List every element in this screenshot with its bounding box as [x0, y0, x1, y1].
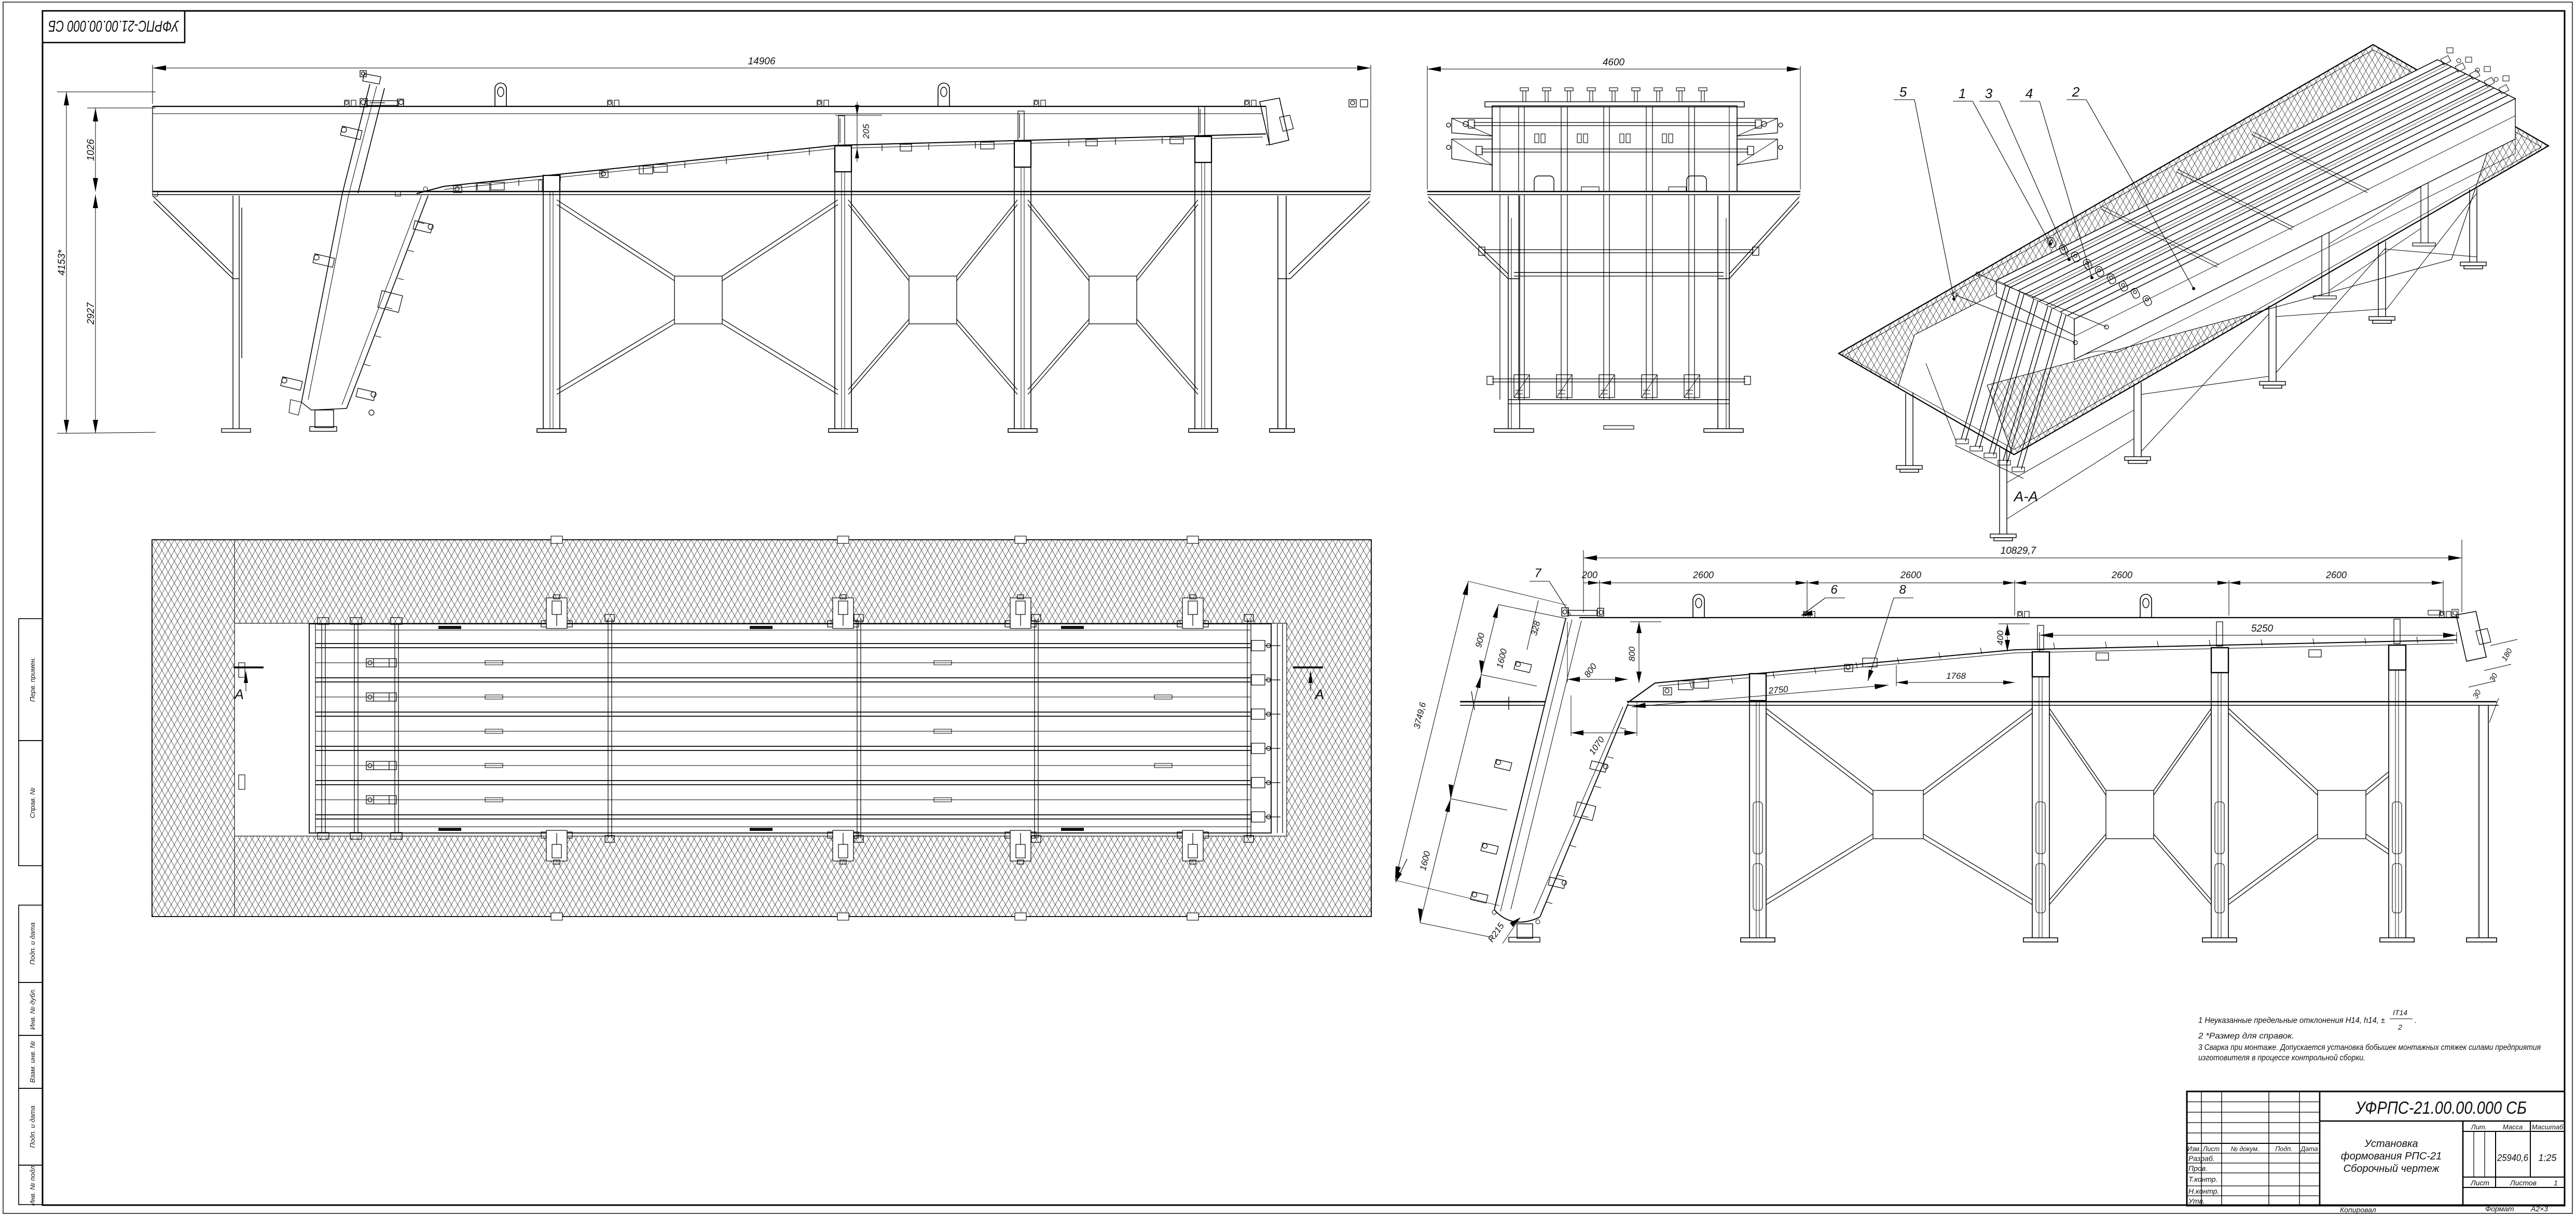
svg-text:Сборочный чертеж: Сборочный чертеж [2344, 1163, 2440, 1174]
svg-text:2: 2 [2398, 1023, 2402, 1031]
svg-text:25940,6: 25940,6 [2497, 1153, 2529, 1163]
svg-text:4153*: 4153* [57, 250, 67, 276]
svg-text:205: 205 [861, 124, 871, 139]
svg-text:Копировал: Копировал [2340, 1206, 2376, 1214]
svg-text:3: 3 [1985, 86, 1993, 101]
svg-text:2600: 2600 [1900, 570, 1921, 580]
svg-text:IT14: IT14 [2393, 1008, 2407, 1017]
svg-text:УФРПС-21.00.00.000 СБ: УФРПС-21.00.00.000 СБ [48, 17, 180, 35]
svg-text:Пров.: Пров. [2188, 1164, 2208, 1172]
svg-text:5: 5 [1899, 84, 1907, 100]
svg-text:7: 7 [1534, 566, 1542, 580]
svg-text:2600: 2600 [2325, 570, 2347, 580]
svg-text:5250: 5250 [2251, 623, 2274, 634]
svg-text:2750: 2750 [1768, 684, 1789, 695]
svg-text:2600: 2600 [1692, 570, 1714, 580]
svg-text:Перв. примен.: Перв. примен. [29, 657, 36, 702]
svg-text:2600: 2600 [2111, 570, 2132, 580]
svg-text:2927: 2927 [86, 302, 97, 325]
svg-text:1026: 1026 [86, 139, 97, 161]
svg-text:Подп. и дата: Подп. и дата [29, 922, 36, 964]
svg-text:Формат: Формат [2485, 1205, 2514, 1213]
svg-text:Инв. № дубл.: Инв. № дубл. [29, 988, 36, 1030]
svg-text:Лит.: Лит. [2471, 1123, 2487, 1131]
svg-text:8: 8 [1899, 583, 1906, 597]
svg-text:1:25: 1:25 [2538, 1153, 2557, 1163]
svg-text:Листов: Листов [2510, 1179, 2537, 1187]
svg-text:Разраб.: Разраб. [2188, 1154, 2215, 1163]
svg-text:Дата: Дата [2300, 1145, 2318, 1153]
svg-text:Масштаб: Масштаб [2532, 1123, 2564, 1131]
svg-text:Изм.: Изм. [2187, 1145, 2201, 1153]
svg-text:2 *Размер для справок.: 2 *Размер для справок. [2198, 1032, 2294, 1041]
svg-text:14906: 14906 [748, 56, 776, 67]
svg-text:1: 1 [1959, 86, 1966, 101]
svg-text:А-А: А-А [2013, 488, 2038, 504]
svg-text:1768: 1768 [1946, 671, 1966, 681]
svg-text:800: 800 [1627, 646, 1637, 661]
svg-text:Масса: Масса [2503, 1123, 2523, 1131]
svg-text:изготовителя в процессе контро: изготовителя в процессе контрольной сбор… [2198, 1054, 2365, 1062]
svg-text:400: 400 [1995, 630, 2005, 645]
svg-text:Лист: Лист [2202, 1145, 2220, 1153]
svg-text:УФРПС-21.00.00.000 СБ: УФРПС-21.00.00.000 СБ [2355, 1098, 2527, 1118]
svg-text:4600: 4600 [1603, 57, 1625, 68]
svg-text:Утв.: Утв. [2188, 1197, 2205, 1205]
svg-text:Инв. № подл.: Инв. № подл. [29, 1164, 36, 1206]
svg-text:№ докум.: № докум. [2230, 1145, 2259, 1153]
svg-text:Справ. №: Справ. № [29, 787, 36, 818]
svg-text:1 Неуказанные предельные откл: 1 Неуказанные предельные отклонения Н14,… [2198, 1016, 2385, 1025]
svg-text:6: 6 [1830, 583, 1838, 597]
svg-text:1: 1 [2554, 1179, 2558, 1187]
svg-text:200: 200 [1581, 570, 1597, 580]
svg-text:Взам. инв. №: Взам. инв. № [29, 1041, 36, 1083]
svg-text:Н.контр.: Н.контр. [2188, 1187, 2219, 1195]
svg-text:2: 2 [2072, 84, 2080, 100]
svg-text:А: А [233, 687, 244, 702]
svg-text:А2×3: А2×3 [2530, 1205, 2548, 1213]
svg-text:Подп.: Подп. [2275, 1145, 2292, 1153]
svg-text:Т.контр.: Т.контр. [2188, 1175, 2217, 1183]
svg-text:3 Сварка при монтаже. Допуска: 3 Сварка при монтаже. Допускается устано… [2198, 1043, 2541, 1052]
svg-text:формования РПС-21: формования РПС-21 [2341, 1151, 2442, 1162]
svg-text:А: А [1314, 687, 1324, 702]
svg-text:Подп. и дата: Подп. и дата [29, 1105, 36, 1147]
svg-text:.: . [2415, 1016, 2417, 1025]
svg-text:Установка: Установка [2364, 1138, 2418, 1150]
svg-text:Лист: Лист [2470, 1179, 2489, 1187]
svg-text:10829,7: 10829,7 [2001, 545, 2037, 556]
svg-text:4: 4 [2026, 86, 2033, 101]
